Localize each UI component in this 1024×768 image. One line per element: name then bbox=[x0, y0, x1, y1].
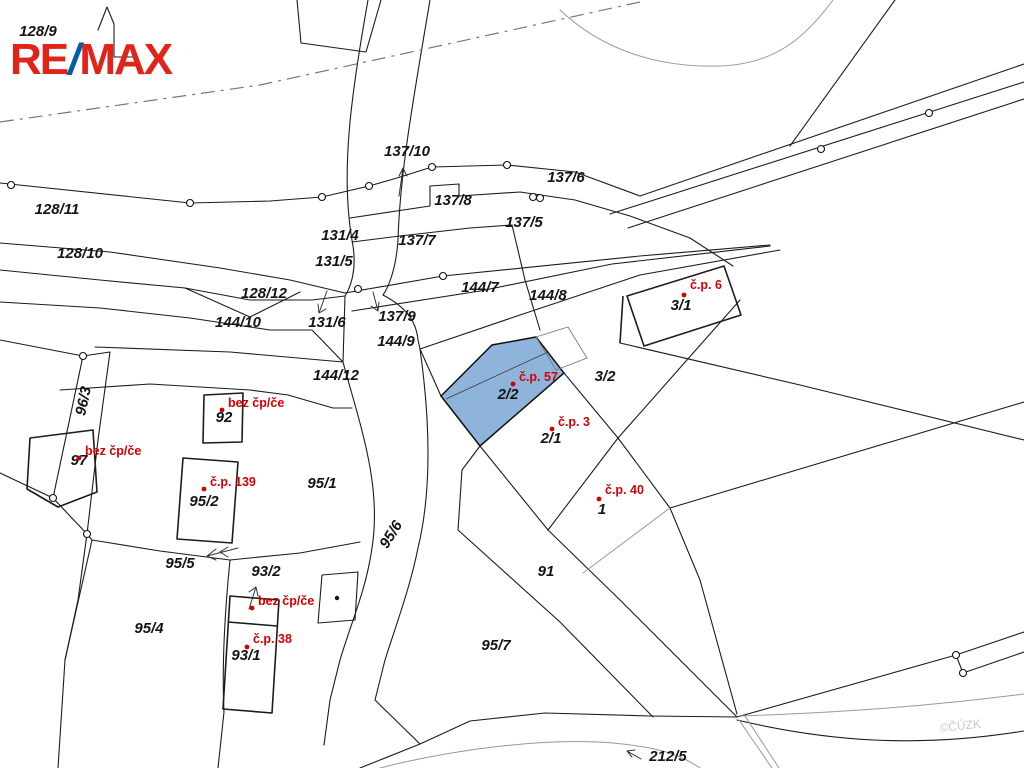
parcel-label: 93/1 bbox=[231, 647, 260, 664]
house-number-label: č.p. 139 bbox=[210, 475, 256, 489]
parcel-label: 131/5 bbox=[315, 253, 353, 270]
parcel-label: 2/1 bbox=[540, 430, 562, 447]
house-number-label: bez čp/če bbox=[228, 396, 284, 410]
parcel-label: 1 bbox=[598, 501, 606, 518]
house-number-label: č.p. 40 bbox=[605, 483, 644, 497]
parcel-label: 137/7 bbox=[398, 232, 436, 249]
parcel-label: 144/12 bbox=[313, 367, 360, 384]
parcel-label: 95/2 bbox=[189, 493, 219, 510]
house-number-label: bez čp/če bbox=[85, 444, 141, 458]
parcel-label: 144/9 bbox=[377, 333, 415, 350]
point-marker bbox=[335, 596, 339, 600]
parcel-label: 95/4 bbox=[134, 620, 164, 637]
parcel-label: 91 bbox=[538, 563, 555, 580]
logo-re-text: RE bbox=[10, 35, 67, 84]
parcel-label: 2/2 bbox=[497, 386, 520, 403]
parcel-label: 144/8 bbox=[529, 287, 567, 304]
parcel-label: 137/10 bbox=[384, 143, 431, 160]
parcel-label: 137/6 bbox=[547, 169, 585, 186]
parcel-label: 3/1 bbox=[671, 297, 692, 314]
parcel-label: 128/11 bbox=[35, 201, 80, 218]
logo-max-text: MAX bbox=[79, 35, 171, 84]
parcel-label: 144/7 bbox=[461, 279, 499, 296]
parcel-label: 137/5 bbox=[505, 214, 543, 231]
parcel-label: 212/5 bbox=[648, 748, 687, 765]
house-number-label: č.p. 3 bbox=[558, 415, 590, 429]
house-number-dot bbox=[597, 497, 602, 502]
cadastral-map: 128/9128/11128/10128/12144/10131/4131/51… bbox=[0, 0, 1024, 768]
parcel-label: 131/6 bbox=[308, 314, 346, 331]
house-number-label: č.p. 38 bbox=[253, 632, 292, 646]
parcel-label: 137/9 bbox=[378, 308, 416, 325]
house-number-dot bbox=[245, 645, 250, 650]
house-number-dot bbox=[682, 293, 687, 298]
logo-slash: / bbox=[67, 35, 79, 84]
house-number-dot bbox=[550, 427, 555, 432]
parcel-label: 128/10 bbox=[57, 245, 104, 262]
parcel-label: 131/4 bbox=[321, 227, 359, 244]
house-number-dot bbox=[77, 456, 82, 461]
cuzk-watermark: ©ČÚZK bbox=[939, 716, 982, 735]
parcel-label: 92 bbox=[216, 409, 233, 426]
house-number-dot bbox=[220, 408, 225, 413]
parcel-label: 93/2 bbox=[251, 563, 281, 580]
cadastral-map-screenshot: 128/9128/11128/10128/12144/10131/4131/51… bbox=[0, 0, 1024, 768]
house-number-label: č.p. 6 bbox=[690, 278, 722, 292]
remax-logo: RE/MAX bbox=[10, 38, 171, 82]
house-number-label: bez čp/če bbox=[258, 594, 314, 608]
house-number-dot bbox=[250, 606, 255, 611]
parcel-label: 137/8 bbox=[434, 192, 472, 209]
parcel-label: 128/12 bbox=[241, 285, 288, 302]
parcel-label: 95/7 bbox=[481, 637, 511, 654]
parcel-label: 95/6 bbox=[376, 517, 406, 551]
house-number-dot bbox=[202, 487, 207, 492]
house-number-dot bbox=[511, 382, 516, 387]
house-number-label: č.p. 57 bbox=[519, 370, 558, 384]
reference-arrows bbox=[207, 168, 641, 759]
parcel-label: 3/2 bbox=[595, 368, 617, 385]
parcel-label: 95/1 bbox=[307, 475, 336, 492]
parcel-label: 144/10 bbox=[215, 314, 262, 331]
parcel-label: 95/5 bbox=[165, 555, 195, 572]
